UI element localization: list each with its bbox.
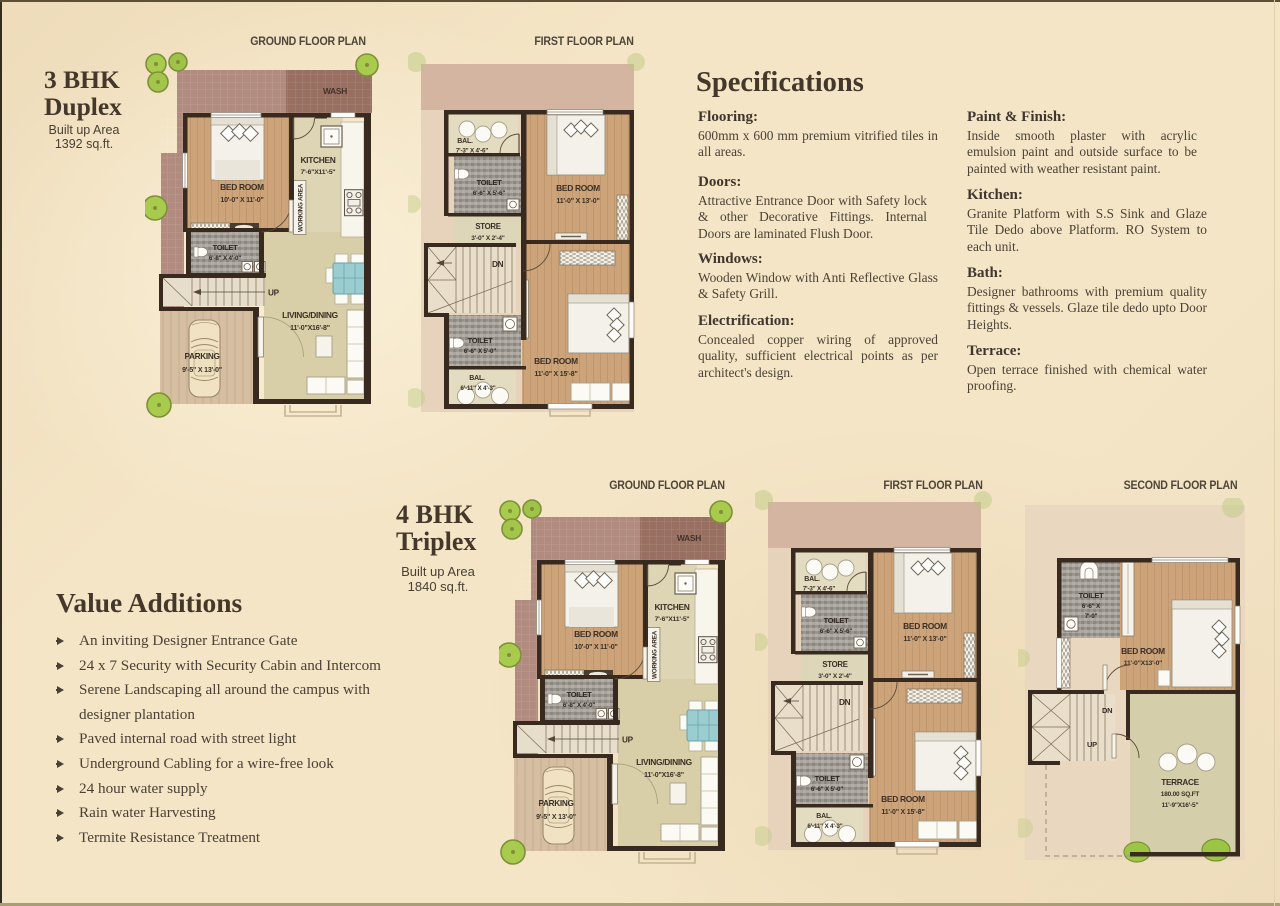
svg-text:BED ROOM: BED ROOM	[574, 629, 618, 639]
svg-text:BAL.: BAL.	[804, 576, 820, 583]
svg-text:LIVING/DINING: LIVING/DINING	[636, 757, 692, 767]
svg-text:6'-6" X 5'-6": 6'-6" X 5'-6"	[473, 190, 505, 197]
svg-text:TOILET: TOILET	[477, 178, 502, 187]
svg-text:3'-0" X 2'-4": 3'-0" X 2'-4"	[471, 235, 505, 242]
svg-text:WORKING AREA: WORKING AREA	[298, 183, 305, 232]
svg-text:BED ROOM: BED ROOM	[1121, 646, 1165, 656]
svg-text:11'-0"X16'-8": 11'-0"X16'-8"	[644, 772, 684, 779]
svg-text:9'-5" X 13'-0": 9'-5" X 13'-0"	[536, 814, 576, 821]
svg-text:DN: DN	[839, 698, 851, 707]
svg-text:10'-0" X 11'-0": 10'-0" X 11'-0"	[220, 197, 263, 204]
svg-text:BAL.: BAL.	[816, 813, 832, 820]
svg-text:11'-0" X 15'-8": 11'-0" X 15'-8"	[534, 371, 577, 378]
svg-text:6'-8" X 4'-0": 6'-8" X 4'-0"	[209, 255, 241, 262]
svg-text:6'-11" X 4'-3": 6'-11" X 4'-3"	[460, 385, 495, 392]
svg-text:UP: UP	[268, 289, 280, 298]
svg-text:6'-6" X 5'-6": 6'-6" X 5'-6"	[820, 628, 852, 635]
svg-text:STORE: STORE	[475, 222, 500, 231]
svg-text:TOILET: TOILET	[213, 243, 238, 252]
svg-text:7'-0": 7'-0"	[1085, 613, 1098, 620]
svg-text:WASH: WASH	[323, 86, 347, 96]
svg-text:7'-6"X11'-5": 7'-6"X11'-5"	[655, 616, 690, 623]
svg-text:3'-0" X 2'-4": 3'-0" X 2'-4"	[818, 673, 852, 680]
svg-text:TERRACE: TERRACE	[1161, 778, 1199, 787]
svg-text:LIVING/DINING: LIVING/DINING	[282, 310, 338, 320]
svg-text:11'-0" X 13'-0": 11'-0" X 13'-0"	[903, 636, 946, 643]
svg-text:DN: DN	[492, 260, 504, 269]
svg-text:PARKING: PARKING	[538, 799, 573, 808]
svg-text:UP: UP	[622, 736, 634, 745]
svg-text:WASH: WASH	[677, 533, 701, 543]
svg-text:TOILET: TOILET	[567, 690, 592, 699]
svg-text:BED ROOM: BED ROOM	[220, 182, 264, 192]
svg-text:11'-0"X16'-8": 11'-0"X16'-8"	[290, 325, 330, 332]
svg-text:6'-6" X: 6'-6" X	[1082, 603, 1101, 610]
svg-text:BAL.: BAL.	[469, 375, 485, 382]
svg-text:KITCHEN: KITCHEN	[654, 602, 689, 612]
svg-text:TOILET: TOILET	[1079, 591, 1104, 600]
svg-text:7'-6"X11'-5": 7'-6"X11'-5"	[301, 169, 336, 176]
svg-text:BED ROOM: BED ROOM	[534, 356, 578, 366]
svg-text:PARKING: PARKING	[184, 352, 219, 361]
svg-text:6'-8" X 4'-0": 6'-8" X 4'-0"	[563, 702, 595, 709]
svg-text:UP: UP	[1087, 740, 1097, 749]
svg-text:STORE: STORE	[822, 660, 847, 669]
svg-text:10'-0" X 11'-0": 10'-0" X 11'-0"	[574, 644, 617, 651]
svg-text:6'-6" X 5'-0": 6'-6" X 5'-0"	[811, 786, 843, 793]
svg-text:TOILET: TOILET	[824, 616, 849, 625]
svg-text:11'-0"X13'-0": 11'-0"X13'-0"	[1124, 660, 1162, 667]
svg-text:6'-6" X 5'-0": 6'-6" X 5'-0"	[464, 348, 496, 355]
svg-text:BED ROOM: BED ROOM	[556, 183, 600, 193]
svg-text:9'-5" X 13'-0": 9'-5" X 13'-0"	[182, 367, 222, 374]
svg-text:WORKING AREA: WORKING AREA	[652, 630, 659, 679]
svg-text:BAL.: BAL.	[457, 138, 473, 145]
svg-text:11'-0" X 13'-0": 11'-0" X 13'-0"	[556, 198, 599, 205]
svg-text:KITCHEN: KITCHEN	[300, 155, 335, 165]
svg-text:180.00 SQ.FT: 180.00 SQ.FT	[1161, 791, 1200, 798]
svg-text:BED ROOM: BED ROOM	[881, 794, 925, 804]
svg-text:BED ROOM: BED ROOM	[903, 621, 947, 631]
svg-text:6'-11" X 4'-3": 6'-11" X 4'-3"	[807, 823, 842, 830]
svg-text:TOILET: TOILET	[468, 336, 493, 345]
svg-text:TOILET: TOILET	[815, 774, 840, 783]
svg-text:11'-9"X16'-5": 11'-9"X16'-5"	[1162, 802, 1199, 809]
svg-text:DN: DN	[1102, 706, 1112, 715]
svg-text:11'-0" X 15'-8": 11'-0" X 15'-8"	[881, 809, 924, 816]
